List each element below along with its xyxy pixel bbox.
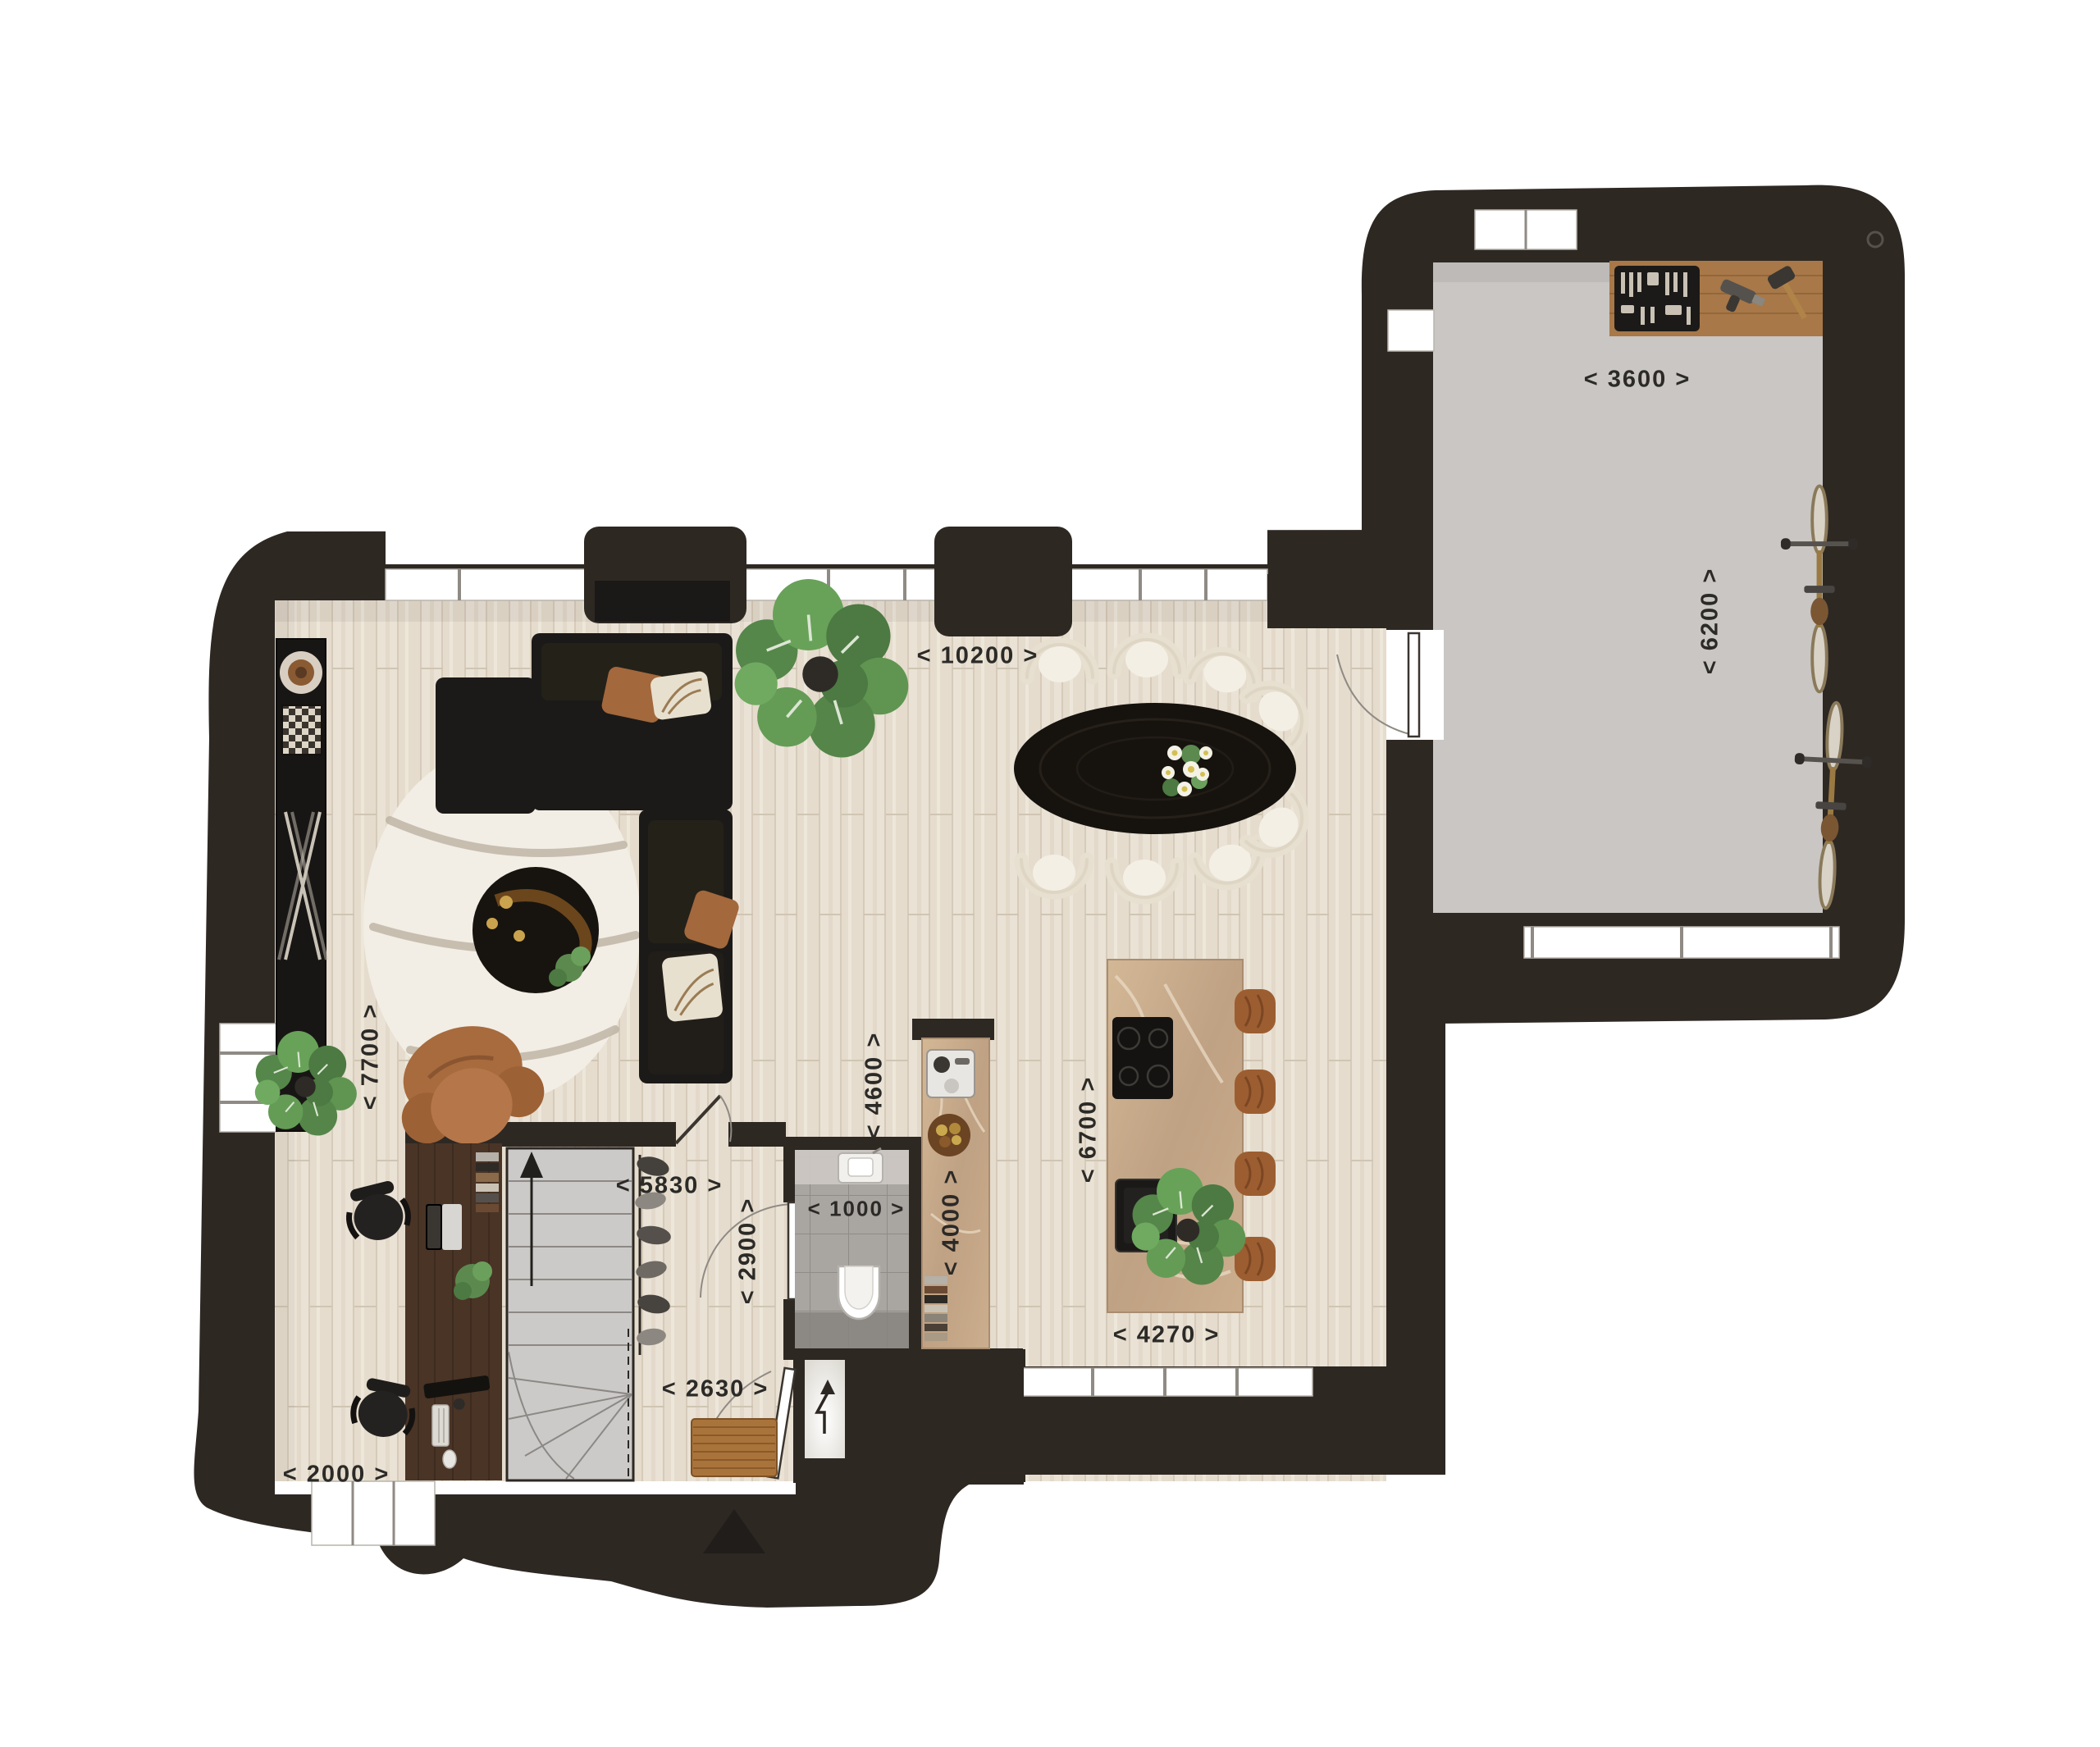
meter-cupboard <box>805 1360 845 1458</box>
garage-floor <box>1433 262 1823 913</box>
dimension-label-garage-depth: < 6200 > <box>1697 568 1724 675</box>
mouse <box>443 1450 456 1468</box>
dimension-label-kitchen-depth: < 4600 > <box>861 1032 888 1139</box>
toilet-room <box>795 1148 909 1348</box>
laptop <box>426 1204 462 1250</box>
garage-side-window <box>1388 310 1434 351</box>
dimension-label-entry-width: < 2630 > <box>662 1376 769 1403</box>
toolbox <box>1614 266 1700 331</box>
induction-hob <box>1112 1017 1173 1099</box>
workbench <box>1609 261 1823 336</box>
garage-top-window <box>1475 210 1577 249</box>
outside-area <box>386 489 1267 564</box>
dimension-label-kitchen-width: < 4270 > <box>1113 1322 1221 1349</box>
dimension-label-hall-depth: < 2900 > <box>735 1197 762 1305</box>
window-head-line <box>386 564 1267 569</box>
kitchen-window <box>1020 1368 1312 1396</box>
pillow-leaf <box>650 670 713 720</box>
dimension-label-office-width: < 2000 > <box>283 1462 390 1489</box>
dining-table <box>1014 703 1296 834</box>
washbasin <box>838 1148 883 1183</box>
doormat <box>692 1419 777 1476</box>
dimension-label-living-span: < 5830 > <box>616 1173 724 1200</box>
dimension-label-island-span: < 6700 > <box>1075 1076 1102 1184</box>
coffee-machine <box>927 1050 975 1097</box>
wall-pier <box>934 527 1072 636</box>
floor-plan: < 3600 > < 6200 > < 10200 > < 7700 > < 5… <box>0 0 2100 1747</box>
coffee-table <box>472 867 599 993</box>
dimension-label-living-depth: < 7700 > <box>358 1003 385 1111</box>
tv-cabinet <box>595 581 730 622</box>
fruit-bowl <box>928 1114 970 1156</box>
pillow-leaf <box>661 953 724 1023</box>
wall-segment <box>1267 574 1390 628</box>
chessboard <box>282 705 322 755</box>
staircase <box>507 1148 633 1480</box>
dimension-label-counter-span: < 4000 > <box>938 1169 966 1276</box>
garage-rear-window <box>1524 927 1839 958</box>
desk <box>405 1143 502 1480</box>
office-window <box>312 1481 435 1545</box>
keyboard <box>432 1405 449 1446</box>
wall-toilet <box>838 1266 879 1319</box>
dimension-label-living-width: < 10200 > <box>917 643 1039 670</box>
dimension-label-garage-width: < 3600 > <box>1584 367 1691 394</box>
dimension-label-toilet-width: < 1000 > <box>808 1197 906 1222</box>
entrance-threshold <box>678 1481 793 1494</box>
